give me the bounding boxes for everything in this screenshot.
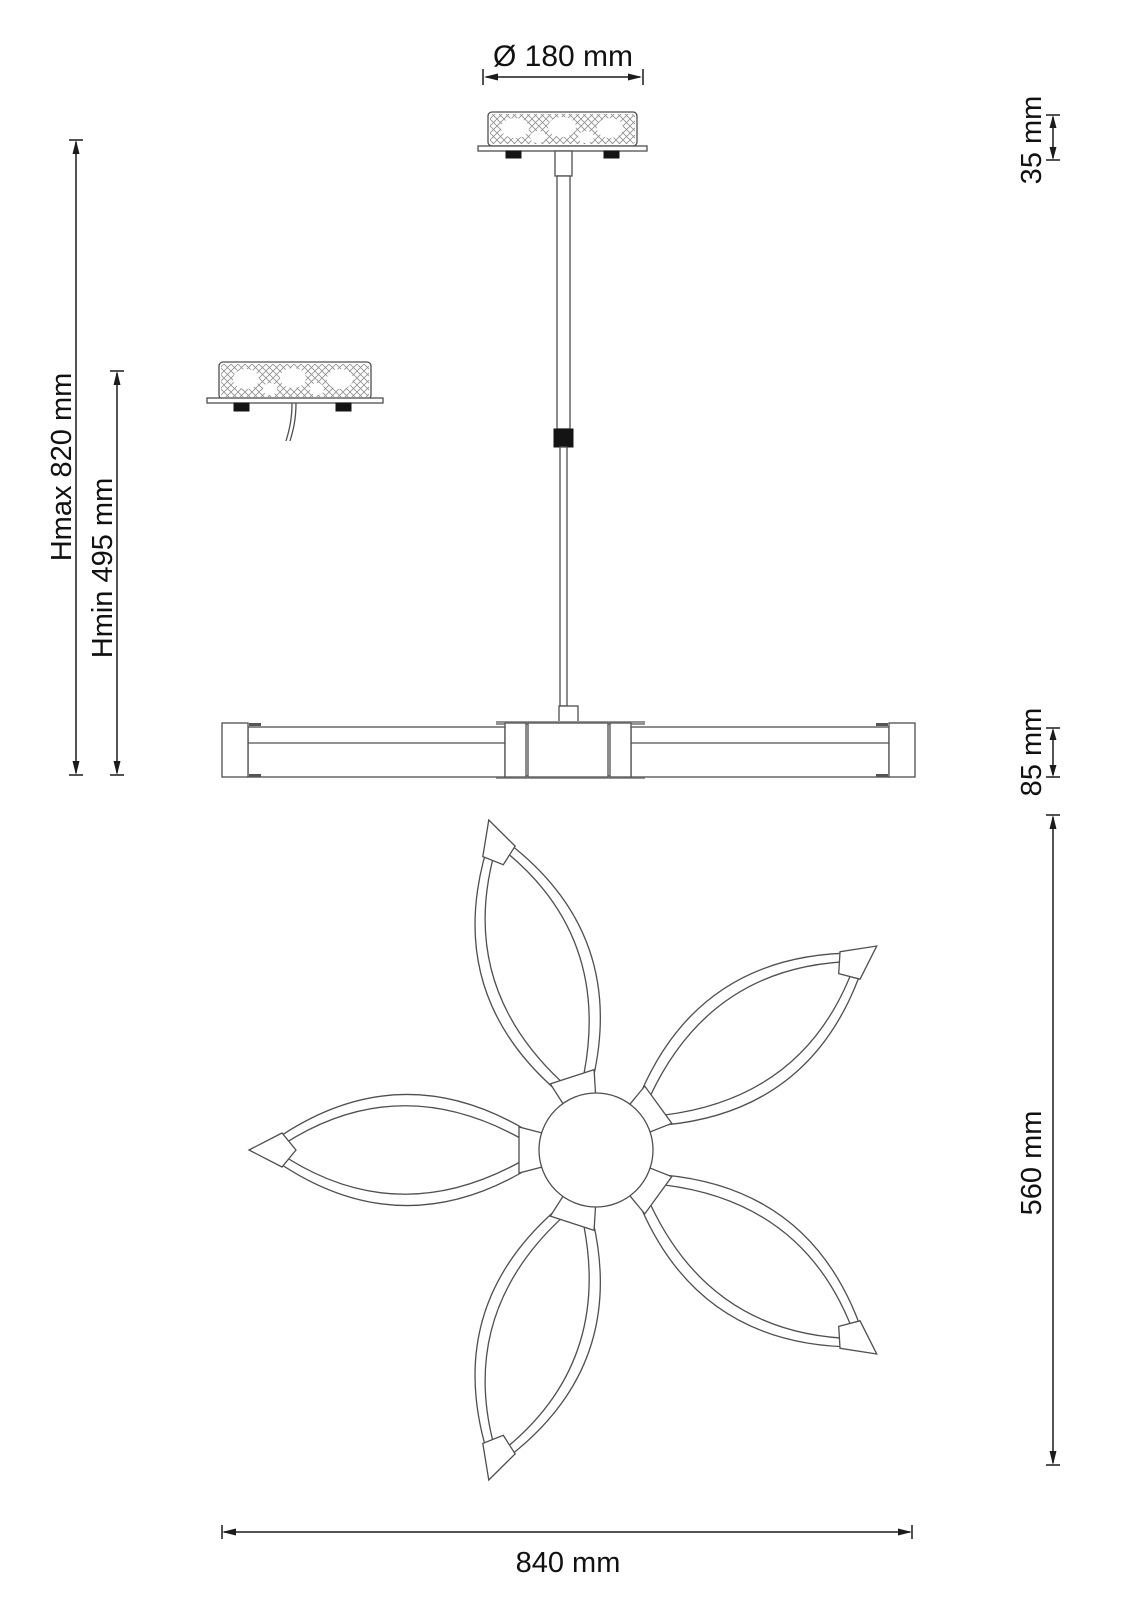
canopy-detail-view: [207, 362, 383, 441]
detail-nut-right: [336, 403, 351, 411]
petal-tip-cap: [829, 932, 887, 987]
bar-left-end-cap: [222, 723, 248, 777]
dimension-height-min: Hmin 495 mm: [87, 371, 124, 775]
rod-top-collar: [555, 151, 572, 176]
bar-right-connector: [610, 723, 631, 777]
height-max-label: Hmax 820 mm: [46, 373, 78, 562]
dimension-top-view-width: 840 mm: [222, 1525, 912, 1579]
canopy-nut-right: [604, 151, 619, 158]
dimension-canopy-height: 35 mm: [1016, 96, 1060, 185]
bar-top-collar: [559, 706, 578, 723]
petal-tip-cap: [829, 1313, 887, 1368]
canopy-nut-left: [506, 151, 521, 158]
canopy-height-label: 35 mm: [1016, 96, 1048, 185]
technical-drawing: Ø 180 mm 35 mm: [0, 0, 1131, 1600]
top-view-width-label: 840 mm: [516, 1547, 621, 1579]
bar-center-block: [528, 723, 608, 777]
canopy-plate: [478, 146, 647, 151]
detail-canopy-plate: [207, 398, 383, 403]
petal-5: [249, 1094, 546, 1205]
bar-height-label: 85 mm: [1016, 708, 1048, 797]
lamp-top-view: [249, 803, 909, 1497]
bar-right-end-cap: [889, 723, 915, 777]
rod-adjuster: [554, 429, 573, 447]
technical-drawing-page: Ø 180 mm 35 mm: [0, 0, 1131, 1600]
dimension-canopy-diameter: Ø 180 mm: [483, 40, 643, 85]
lamp-bar-side-view: [222, 706, 915, 779]
petal-2: [604, 901, 910, 1165]
canopy-diameter-label: Ø 180 mm: [493, 40, 633, 73]
petal-1: [436, 803, 633, 1120]
rod-upper-tube: [557, 176, 570, 429]
bar-left-connector: [505, 723, 526, 777]
bar-left-arm: [248, 727, 505, 777]
petal-tip-cap: [473, 1430, 520, 1485]
bar-right-arm: [631, 727, 889, 777]
dimension-height-max: Hmax 820 mm: [46, 140, 83, 775]
dimension-bar-height: 85 mm: [1016, 708, 1060, 797]
petal-tip-cap: [473, 815, 520, 870]
height-min-label: Hmin 495 mm: [87, 478, 119, 659]
petal-4: [436, 1180, 633, 1497]
center-hub: [539, 1093, 653, 1207]
rod-lower-tube: [560, 447, 567, 706]
dimension-top-view-depth: 560 mm: [1016, 815, 1060, 1465]
petal-tip-cap: [249, 1133, 296, 1167]
suspension-rod: [554, 151, 573, 706]
detail-nut-left: [234, 403, 249, 411]
top-view-depth-label: 560 mm: [1016, 1111, 1048, 1216]
petal-3: [604, 1134, 910, 1398]
